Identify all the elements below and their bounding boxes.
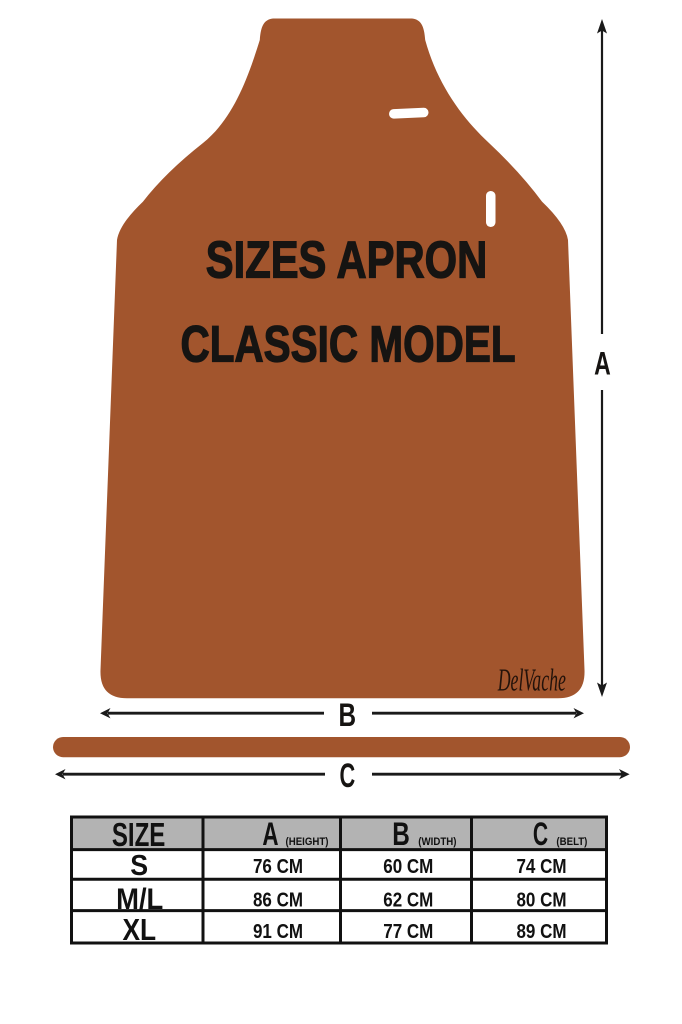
svg-text:XL: XL <box>122 913 156 947</box>
svg-text:86 CM: 86 CM <box>253 888 303 911</box>
svg-text:CLASSIC MODEL: CLASSIC MODEL <box>180 315 515 373</box>
svg-text:C: C <box>339 757 355 795</box>
svg-text:S: S <box>130 849 148 881</box>
svg-text:60 CM: 60 CM <box>383 855 433 878</box>
svg-text:A: A <box>594 346 611 382</box>
svg-text:77 CM: 77 CM <box>383 920 433 943</box>
svg-text:DelVache: DelVache <box>497 662 566 698</box>
svg-text:(HEIGHT): (HEIGHT) <box>286 837 329 849</box>
svg-text:(BELT): (BELT) <box>556 837 587 849</box>
svg-text:89 CM: 89 CM <box>516 920 566 943</box>
svg-text:74 CM: 74 CM <box>516 855 566 878</box>
svg-text:B: B <box>392 817 410 853</box>
svg-text:62 CM: 62 CM <box>383 888 433 911</box>
svg-text:91 CM: 91 CM <box>253 920 303 943</box>
svg-text:M/L: M/L <box>116 883 163 916</box>
svg-text:SIZES APRON: SIZES APRON <box>206 230 488 288</box>
svg-text:C: C <box>533 815 548 852</box>
svg-text:80 CM: 80 CM <box>516 888 566 911</box>
svg-text:76 CM: 76 CM <box>253 855 303 878</box>
svg-text:A: A <box>262 816 278 852</box>
svg-text:(WIDTH): (WIDTH) <box>418 837 456 849</box>
svg-text:B: B <box>339 698 357 734</box>
